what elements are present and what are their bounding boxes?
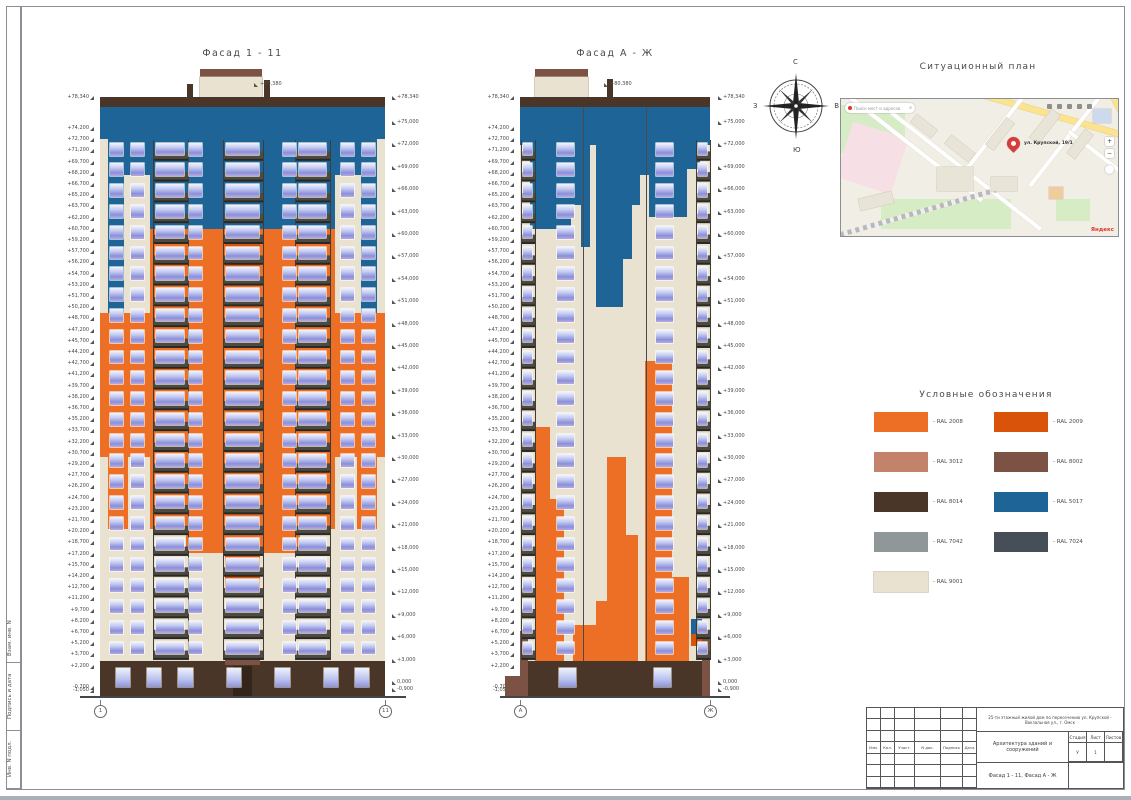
window — [189, 538, 202, 551]
elevation-tick — [510, 261, 514, 265]
window — [110, 600, 123, 613]
balcony-window — [299, 247, 326, 259]
elevation-mark: +36,700 — [487, 405, 514, 411]
stage-value: У — [1069, 743, 1087, 762]
legend-swatch — [994, 492, 1048, 512]
elevation-label: +57,700 — [67, 248, 89, 254]
elevation-label: +27,700 — [67, 472, 89, 478]
window — [557, 184, 574, 197]
axis-label: 11 — [379, 705, 392, 718]
elevation-label: +30,700 — [67, 450, 89, 456]
facade-title: Фасад 1 - 11 — [100, 48, 385, 59]
window — [341, 434, 354, 447]
window — [189, 330, 202, 343]
elevation-label: +71,200 — [487, 147, 509, 153]
elevation-mark: +32,200 — [67, 439, 94, 445]
balcony-window — [698, 517, 707, 529]
elevation-label: +65,200 — [487, 192, 509, 198]
balcony-window — [698, 579, 707, 591]
elevation-tick — [90, 317, 94, 321]
elevation-mark: +60,000 — [392, 231, 419, 237]
elevation-label: +27,700 — [487, 472, 509, 478]
balcony-window — [523, 475, 532, 487]
balcony-window — [156, 143, 183, 155]
window — [110, 163, 123, 176]
facade-building — [520, 97, 710, 697]
map-location-pin-icon[interactable] — [1004, 134, 1022, 152]
elevation-label: +39,700 — [487, 383, 509, 389]
window — [362, 309, 375, 322]
elevation-mark: +14,200 — [67, 573, 94, 579]
balcony-window — [226, 288, 259, 300]
situational-map[interactable]: ул. Крупской, 19/1 Поиск мест и адресов … — [840, 98, 1119, 237]
window — [557, 600, 574, 613]
legend-label: - RAL 3012 — [933, 459, 963, 465]
elevation-label: +47,200 — [67, 327, 89, 333]
elevation-label: +75,000 — [723, 119, 745, 125]
balcony-window — [698, 371, 707, 383]
facade-block — [632, 145, 640, 205]
elevation-tick — [90, 689, 94, 693]
zoom-in-button[interactable]: + — [1105, 137, 1114, 146]
window — [557, 579, 574, 592]
elevation-label: +45,000 — [397, 343, 419, 349]
map-green-area — [1056, 199, 1090, 221]
elevation-label: +29,200 — [487, 461, 509, 467]
balcony-window — [299, 517, 326, 529]
elevation-mark: +63,000 — [392, 209, 419, 215]
elevation-mark: +21,700 — [67, 517, 94, 523]
elevation-label: +11,200 — [487, 595, 509, 601]
balcony-window — [299, 621, 326, 633]
elevation-tick — [718, 166, 722, 170]
elevation-tick — [510, 385, 514, 389]
window — [656, 205, 673, 218]
elevation-mark: +41,200 — [67, 371, 94, 377]
balcony-window — [226, 642, 259, 654]
window — [557, 226, 574, 239]
facade-block — [607, 457, 626, 661]
elevation-label: +51,000 — [397, 298, 419, 304]
elevation-tick — [90, 205, 94, 209]
balcony-window — [698, 475, 707, 487]
window — [341, 267, 354, 280]
elevation-tick — [718, 188, 722, 192]
elevation-label: +24,700 — [487, 495, 509, 501]
zoom-out-button[interactable]: − — [1105, 149, 1114, 158]
elevation-tick — [718, 345, 722, 349]
window — [131, 288, 144, 301]
window — [341, 621, 354, 634]
elevation-tick — [718, 502, 722, 506]
balcony-window — [299, 642, 326, 654]
map-tool-icon[interactable] — [1047, 104, 1052, 109]
map-pin-label: ул. Крупской, 19/1 — [1024, 141, 1073, 146]
window — [341, 330, 354, 343]
window — [341, 226, 354, 239]
elevation-tick — [510, 519, 514, 523]
elevation-mark: +78,340 — [718, 94, 745, 100]
elevation-mark: -0,900 — [718, 686, 739, 692]
elevation-label: -0,900 — [723, 686, 739, 692]
elevation-tick — [604, 83, 608, 87]
window — [110, 371, 123, 384]
window — [656, 288, 673, 301]
map-search-input[interactable]: Поиск мест и адресов ⌕ — [845, 103, 915, 113]
elevation-label: +36,000 — [723, 410, 745, 416]
elevation-tick — [718, 255, 722, 259]
elevation-tick — [510, 306, 514, 310]
titleblock-cell — [867, 754, 881, 765]
window — [283, 558, 296, 571]
balcony-window — [523, 538, 532, 550]
balcony-window — [698, 454, 707, 466]
window — [283, 600, 296, 613]
elevation-label: 0,000 — [723, 679, 737, 685]
elevation-tick — [510, 161, 514, 165]
search-icon[interactable]: ⌕ — [909, 105, 912, 111]
legend-swatch — [874, 412, 928, 432]
window — [656, 621, 673, 634]
compass-north-label: С — [793, 58, 798, 66]
elevation-tick — [90, 96, 94, 100]
balcony-window — [156, 621, 183, 633]
window — [283, 330, 296, 343]
balcony-window — [226, 143, 259, 155]
geolocation-button[interactable] — [1105, 165, 1114, 174]
balcony-window — [156, 392, 183, 404]
window — [362, 600, 375, 613]
elevation-tick — [90, 485, 94, 489]
elevation-mark: +57,700 — [67, 248, 94, 254]
elevation-mark: +21,000 — [718, 522, 745, 528]
elevation-label: +36,700 — [487, 405, 509, 411]
balcony-window — [226, 330, 259, 342]
elevation-mark: +29,200 — [487, 461, 514, 467]
elevation-mark: +48,000 — [392, 321, 419, 327]
window — [283, 517, 296, 530]
balcony-window — [299, 558, 326, 570]
titleblock-right: 25-ти этажный жилой дом по пересечению у… — [977, 708, 1123, 788]
elevation-label: +51,000 — [723, 298, 745, 304]
elevation-mark: +51,700 — [67, 293, 94, 299]
window — [131, 600, 144, 613]
titleblock-cell — [915, 754, 941, 765]
elevation-mark: +18,000 — [392, 545, 419, 551]
balcony-window — [226, 371, 259, 383]
elevation-tick — [392, 278, 396, 282]
window — [557, 205, 574, 218]
window — [362, 434, 375, 447]
elevation-mark: +33,000 — [718, 433, 745, 439]
elevation-label: +78,340 — [67, 94, 89, 100]
balcony-window — [698, 413, 707, 425]
window — [341, 371, 354, 384]
elevation-label: +6,000 — [397, 634, 416, 640]
elevation-label: +56,200 — [487, 259, 509, 265]
elevation-mark: +9,000 — [392, 612, 416, 618]
facade-block — [672, 577, 689, 661]
titleblock-cell — [963, 754, 977, 765]
window — [131, 434, 144, 447]
elevation-mark: +42,700 — [487, 360, 514, 366]
facade-block — [187, 84, 193, 97]
window — [362, 496, 375, 509]
elevation-label: +57,000 — [723, 253, 745, 259]
elevation-mark: +24,000 — [718, 500, 745, 506]
elevation-label: +47,200 — [487, 327, 509, 333]
balcony-window — [226, 226, 259, 238]
map-tool-icon[interactable] — [1067, 104, 1072, 109]
balcony-window — [226, 413, 259, 425]
facade-block — [100, 97, 385, 107]
titleblock-cell — [895, 754, 915, 765]
elevation-tick — [90, 497, 94, 501]
elevation-mark: +51,000 — [392, 298, 419, 304]
facade-block — [646, 107, 647, 661]
elevation-tick — [510, 273, 514, 277]
balcony-window — [698, 309, 707, 321]
elevation-label: +69,700 — [67, 159, 89, 165]
elevation-mark: +15,000 — [392, 567, 419, 573]
elevation-label: +74,200 — [67, 125, 89, 131]
facade-block — [626, 535, 637, 661]
elevation-mark: +24,000 — [392, 500, 419, 506]
window — [362, 517, 375, 530]
compass-rose: С Ю З В — [753, 58, 839, 154]
elevation-mark: +69,700 — [487, 159, 514, 165]
window — [557, 642, 574, 655]
map-tool-icon[interactable] — [1057, 104, 1062, 109]
elevation-mark: +72,000 — [392, 141, 419, 147]
elevation-label: +45,000 — [723, 343, 745, 349]
facade-block — [583, 107, 584, 661]
titleblock-cell — [867, 765, 881, 776]
window — [283, 475, 296, 488]
balcony-window — [523, 392, 532, 404]
titleblock-cell — [867, 731, 881, 742]
elevation-mark: +59,200 — [67, 237, 94, 243]
elevation-mark: +75,000 — [718, 119, 745, 125]
elevation-tick — [90, 239, 94, 243]
elevation-tick — [718, 233, 722, 237]
titleblock-cell: Изм. — [867, 742, 881, 753]
window — [283, 226, 296, 239]
balcony-window — [523, 184, 532, 196]
facade-block — [200, 69, 263, 76]
window — [656, 642, 673, 655]
titleblock-cell — [941, 719, 963, 730]
elevation-tick — [718, 121, 722, 125]
map-tool-icon[interactable] — [1077, 104, 1082, 109]
elevation-tick — [90, 362, 94, 366]
elevation-mark: +20,200 — [487, 528, 514, 534]
elevation-label: +66,000 — [397, 186, 419, 192]
balcony-window — [523, 434, 532, 446]
titleblock-grid: Изм.Кол.Участ.N док.ПодписьДата — [867, 708, 977, 788]
elevation-tick — [392, 255, 396, 259]
elevation-tick — [90, 553, 94, 557]
elevation-label: +56,200 — [67, 259, 89, 265]
balcony-window — [226, 538, 259, 550]
window — [557, 475, 574, 488]
balcony-window — [698, 538, 707, 550]
elevation-mark: +57,000 — [392, 253, 419, 259]
legend-swatch — [874, 492, 928, 512]
sheet-name: Фасад 1 - 11, Фасад А - Ж — [977, 763, 1069, 788]
window — [131, 143, 144, 156]
balcony-window — [226, 184, 259, 196]
elevation-tick — [392, 569, 396, 573]
elevation-mark: +72,000 — [718, 141, 745, 147]
titleblock-cell — [915, 731, 941, 742]
elevation-mark: +62,200 — [487, 215, 514, 221]
elevation-label: +66,000 — [723, 186, 745, 192]
window — [557, 163, 574, 176]
elevation-label: +5,200 — [490, 640, 509, 646]
elevation-mark: +6,000 — [718, 634, 742, 640]
elevation-tick — [392, 681, 396, 685]
titleblock-cell — [963, 719, 977, 730]
elevation-tick — [510, 485, 514, 489]
elevation-tick — [392, 211, 396, 215]
balcony-window — [698, 184, 707, 196]
elevation-mark: +36,000 — [392, 410, 419, 416]
elevation-label: +27,000 — [723, 477, 745, 483]
window — [283, 247, 296, 260]
window — [110, 351, 123, 364]
elevation-mark: +48,700 — [67, 315, 94, 321]
elevation-tick — [90, 463, 94, 467]
map-building — [937, 167, 973, 191]
window — [131, 267, 144, 280]
window — [656, 475, 673, 488]
elevation-mark: 0,000 — [392, 679, 411, 685]
legend-item: - RAL 7042 — [874, 532, 994, 552]
facade-block — [520, 107, 710, 145]
elevation-tick — [392, 636, 396, 640]
window — [341, 538, 354, 551]
elevation-mark: +11,200 — [487, 595, 514, 601]
elevation-label: +69,000 — [723, 164, 745, 170]
elevation-tick — [510, 575, 514, 579]
window — [656, 392, 673, 405]
elevation-label: +17,200 — [67, 551, 89, 557]
axis-mark: 11 — [379, 700, 391, 718]
window — [362, 330, 375, 343]
elevation-mark: +35,200 — [67, 416, 94, 422]
window — [341, 475, 354, 488]
balcony-window — [698, 330, 707, 342]
balcony-window — [299, 143, 326, 155]
elevation-label: +35,200 — [487, 416, 509, 422]
window — [557, 538, 574, 551]
elevation-label: +53,200 — [67, 282, 89, 288]
elevation-mark: +6,700 — [490, 629, 514, 635]
balcony-window — [698, 288, 707, 300]
elevation-tick — [718, 96, 722, 100]
window — [110, 309, 123, 322]
window — [110, 454, 123, 467]
elevation-tick — [718, 479, 722, 483]
legend-item: - RAL 3012 — [874, 452, 994, 472]
window — [110, 517, 123, 530]
elevation-label: +6,000 — [723, 634, 742, 640]
stage-value — [1105, 743, 1123, 762]
elevation-mark: +54,000 — [718, 276, 745, 282]
elevation-tick — [392, 96, 396, 100]
elevation-mark: +30,700 — [67, 450, 94, 456]
axis-label: 1 — [94, 705, 107, 718]
elevation-label: +21,000 — [723, 522, 745, 528]
elevation-label: +30,700 — [487, 450, 509, 456]
elevation-label: +27,000 — [397, 477, 419, 483]
titleblock-cell: N док. — [915, 742, 941, 753]
axis-label: А — [514, 705, 527, 718]
elevation-mark: +12,700 — [487, 584, 514, 590]
elevation-label: +23,200 — [67, 506, 89, 512]
elevation-mark: +68,200 — [487, 170, 514, 176]
elevation-tick — [392, 166, 396, 170]
window — [341, 642, 354, 655]
window — [283, 184, 296, 197]
elevation-tick — [510, 239, 514, 243]
elevation-tick — [718, 143, 722, 147]
elevation-tick — [510, 351, 514, 355]
elevation-tick — [510, 194, 514, 198]
window — [656, 517, 673, 530]
elevation-tick — [718, 278, 722, 282]
elevation-tick — [90, 665, 94, 669]
balcony-window — [299, 309, 326, 321]
ground-window — [559, 668, 576, 687]
elevation-label: +57,000 — [397, 253, 419, 259]
elevation-label: +3,700 — [490, 651, 509, 657]
compass-south-label: Ю — [793, 146, 801, 154]
ground-window — [355, 668, 369, 687]
window — [283, 642, 296, 655]
facade-block — [596, 145, 623, 307]
elevation-mark: +9,700 — [490, 607, 514, 613]
elevation-tick — [90, 519, 94, 523]
window — [656, 558, 673, 571]
window — [341, 517, 354, 530]
elevation-label: +20,200 — [487, 528, 509, 534]
elevation-label: +60,700 — [487, 226, 509, 232]
window — [131, 454, 144, 467]
elevation-tick — [392, 143, 396, 147]
elevation-mark: +57,000 — [718, 253, 745, 259]
elevation-label: +11,200 — [67, 595, 89, 601]
titleblock-cell — [881, 777, 895, 788]
legend-item: - RAL 9001 — [874, 572, 994, 592]
elevation-mark: +65,200 — [67, 192, 94, 198]
window — [341, 600, 354, 613]
map-building — [1049, 187, 1063, 199]
elevation-label: +51,700 — [487, 293, 509, 299]
balcony-window — [523, 621, 532, 633]
window — [362, 475, 375, 488]
elevation-mark: +2,200 — [70, 663, 94, 669]
window — [283, 538, 296, 551]
elevation-mark: +15,700 — [67, 562, 94, 568]
elevation-tick — [90, 575, 94, 579]
elevation-mark: +29,200 — [67, 461, 94, 467]
balcony-window — [156, 247, 183, 259]
elevation-tick — [392, 233, 396, 237]
elevation-mark: +44,200 — [487, 349, 514, 355]
map-tool-icon[interactable] — [1087, 104, 1092, 109]
